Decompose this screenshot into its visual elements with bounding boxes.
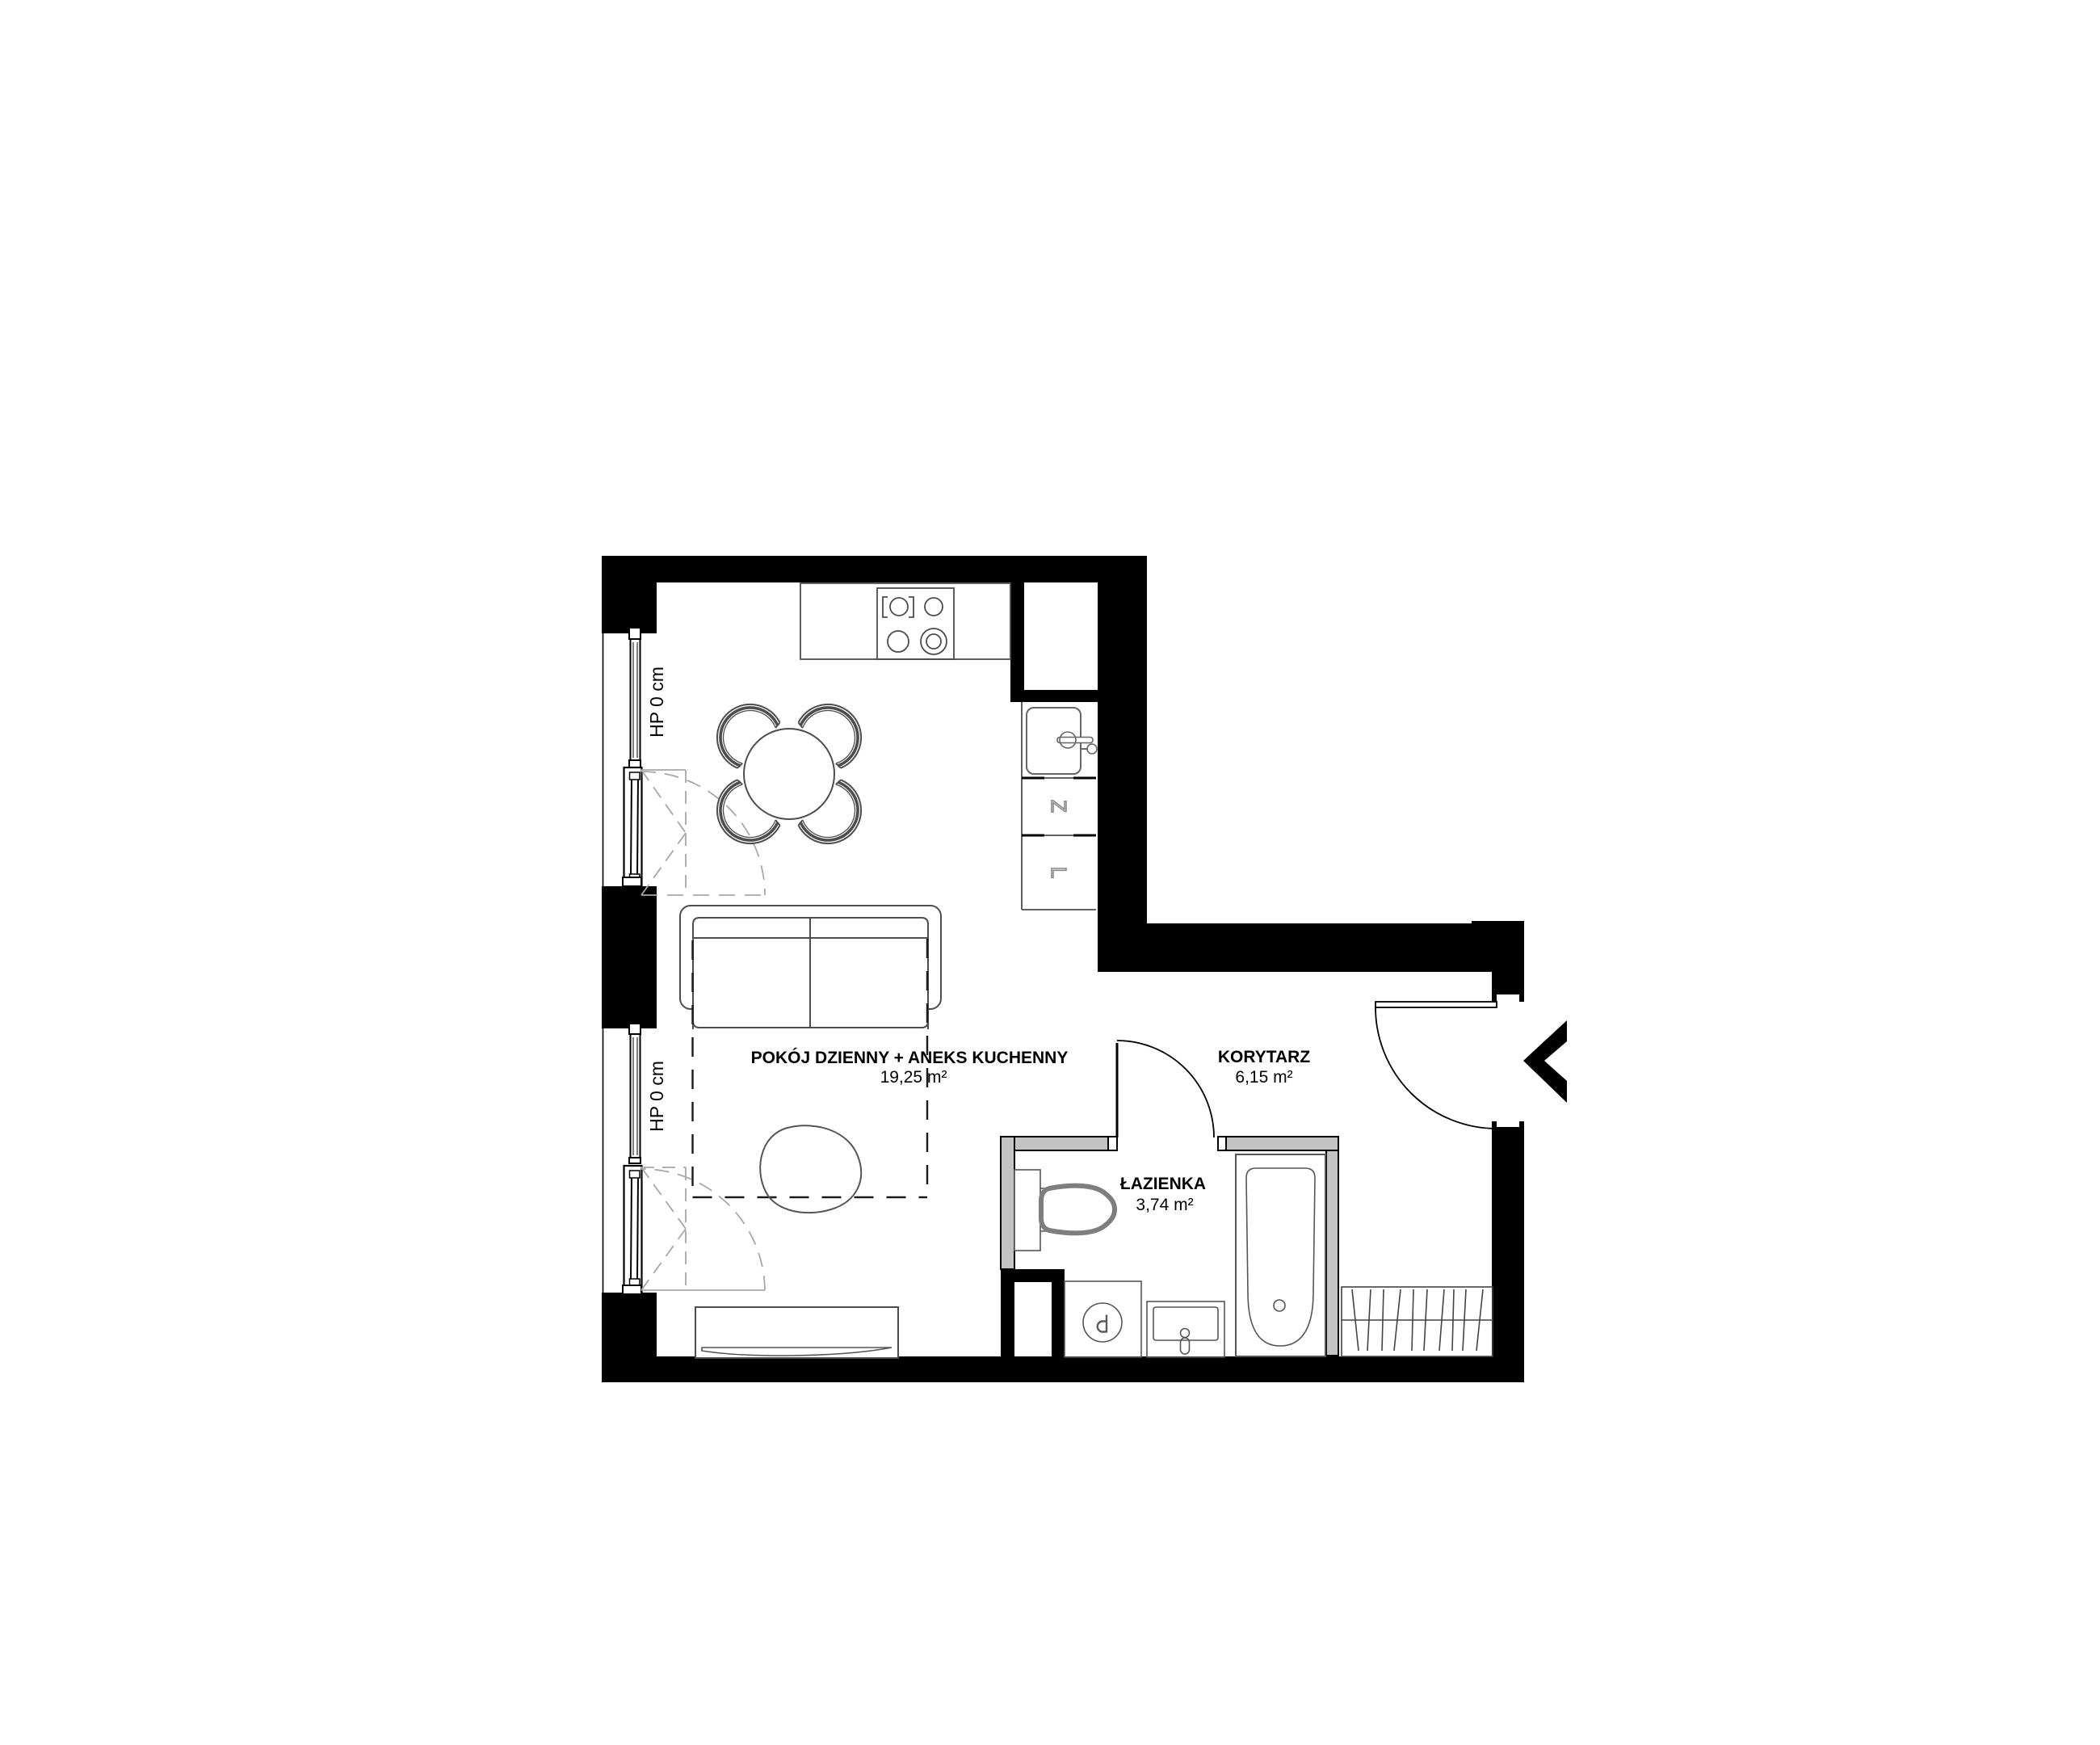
svg-text:KORYTARZ: KORYTARZ bbox=[1218, 1048, 1310, 1066]
svg-text:ŁAZIENKA: ŁAZIENKA bbox=[1120, 1175, 1206, 1193]
svg-text:POKÓJ DZIENNY + ANEKS KUCHENNY: POKÓJ DZIENNY + ANEKS KUCHENNY bbox=[751, 1048, 1069, 1067]
svg-text:L: L bbox=[1047, 867, 1071, 878]
svg-text:19,25 m²: 19,25 m² bbox=[880, 1068, 947, 1087]
svg-text:6,15 m²: 6,15 m² bbox=[1235, 1068, 1292, 1087]
svg-text:Z: Z bbox=[1047, 800, 1071, 813]
svg-text:HP 0 cm: HP 0 cm bbox=[646, 666, 667, 738]
svg-text:HP 0 cm: HP 0 cm bbox=[646, 1061, 667, 1132]
svg-text:3,74 m²: 3,74 m² bbox=[1136, 1196, 1193, 1214]
